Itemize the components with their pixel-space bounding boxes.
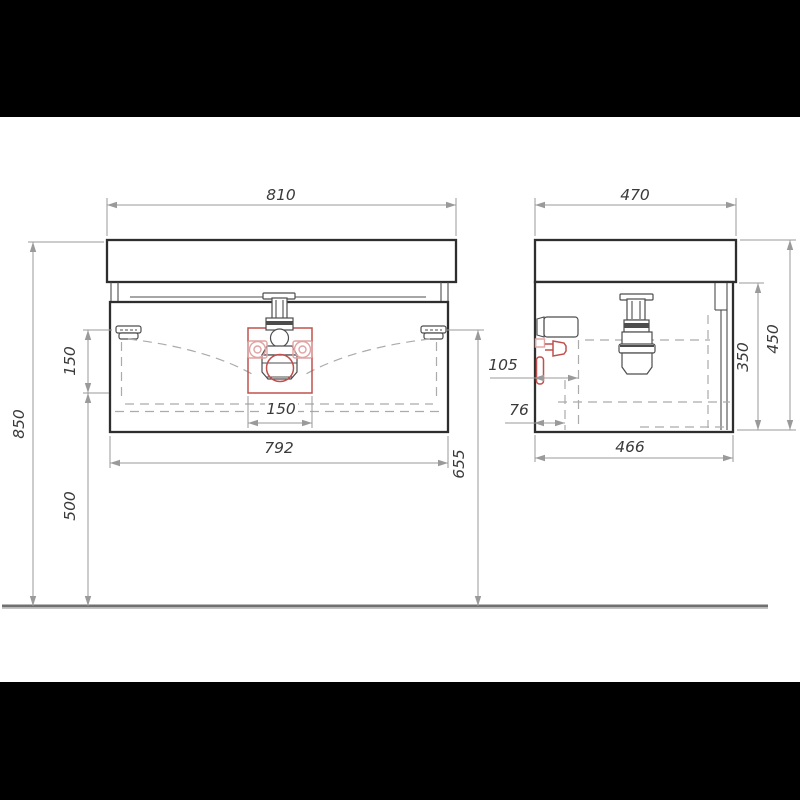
technical-drawing: 810 470 850 150 500 655 (0, 0, 800, 800)
side-countertop (535, 240, 736, 282)
dim-792-label: 792 (264, 439, 294, 457)
side-view (535, 240, 736, 432)
front-hinge-left (116, 326, 141, 339)
floor-line (2, 606, 768, 609)
dim-350-label: 350 (734, 342, 752, 372)
dim-466-label: 466 (615, 438, 645, 456)
dim-150-left-label: 150 (61, 346, 79, 376)
letterbox-top-bar (0, 0, 800, 117)
front-hinge-right (421, 326, 446, 339)
dim-450-label: 450 (764, 324, 782, 354)
dim-470-label: 470 (620, 186, 650, 204)
dim-76-label: 76 (509, 401, 529, 419)
dim-655-label: 655 (450, 449, 468, 479)
dim-850-label: 850 (10, 409, 28, 439)
dim-150-drain-label: 150 (266, 400, 296, 418)
dim-500-label: 500 (61, 491, 79, 521)
front-countertop (107, 240, 456, 282)
letterbox-bottom-bar (0, 682, 800, 800)
dim-810-label: 810 (266, 186, 296, 204)
dim-105-label: 105 (488, 356, 518, 374)
